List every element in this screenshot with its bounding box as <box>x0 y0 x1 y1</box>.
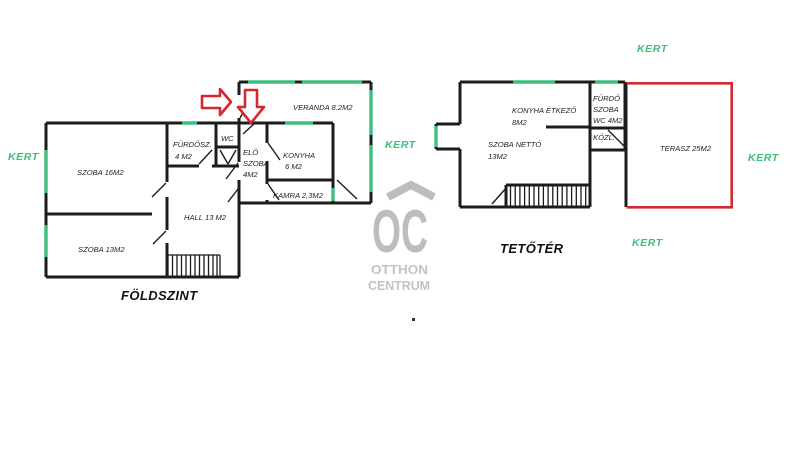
room-label-veranda: VERANDA 8.2M2 <box>293 103 353 112</box>
room-label-terasz: TERASZ 25M2 <box>660 144 712 153</box>
otthon-centrum-watermark: OC OTTHON CENTRUM <box>368 185 434 321</box>
room-label-szoba-16: SZOBA 16M2 <box>77 168 124 177</box>
room-label-konyha-line1: KONYHA <box>283 151 315 160</box>
room-label-furdosz-line2: 4 M2 <box>175 152 193 161</box>
room-label-hall: HALL 13 M2 <box>184 213 227 222</box>
room-label-kamra: KAMRA 2,3M2 <box>273 191 324 200</box>
room-label-konyha-etkezo-line2: 8M2 <box>512 118 528 127</box>
room-label-szoba-netto-line2: 13M2 <box>488 152 508 161</box>
attic-stairs <box>511 186 586 206</box>
logo-text-otthon: OTTHON <box>371 262 428 277</box>
stray-dot <box>412 318 415 321</box>
room-label-eloszoba-line2: SZOBA <box>243 159 269 168</box>
kert-label-attic-top: KERT <box>637 43 669 55</box>
room-label-eloszoba-line1: ELŐ <box>243 148 258 157</box>
kert-label-attic-right: KERT <box>748 152 780 164</box>
kert-label-ground-left: KERT <box>8 151 40 163</box>
kert-label-attic-bottom: KERT <box>632 237 664 249</box>
attic-title: TETŐTÉR <box>500 241 564 256</box>
room-label-konyha-etkezo-line1: KONYHA ÉTKEZŐ <box>512 106 576 115</box>
room-label-konyha-line2: 6 M2 <box>285 162 303 171</box>
room-label-furdosz-line1: FÜRDŐSZ. <box>173 140 212 149</box>
room-label-kozl: KÖZL. <box>593 133 615 142</box>
attic-floor-plan: KONYHA ÉTKEZŐ 8M2 SZOBA NETTÓ 13M2 FÜRDŐ… <box>436 43 780 256</box>
room-label-szoba-13: SZOBA 13M2 <box>78 245 125 254</box>
entrance-arrow-right-icon <box>202 89 231 115</box>
room-label-wc: WC <box>221 134 234 143</box>
floor-plan-page: SZOBA 16M2 SZOBA 13M2 HALL 13 M2 FÜRDŐSZ… <box>0 0 800 476</box>
ground-floor-plan: SZOBA 16M2 SZOBA 13M2 HALL 13 M2 FÜRDŐSZ… <box>8 82 417 303</box>
logo-roof-icon <box>388 185 434 197</box>
ground-stairs <box>168 255 220 276</box>
entrance-arrow-down-icon <box>238 90 264 123</box>
room-label-furdo-line3: WC 4M2 <box>593 116 623 125</box>
ground-floor-title: FÖLDSZINT <box>121 288 198 303</box>
room-label-furdo-line2: SZOBA <box>593 105 619 114</box>
room-label-szoba-netto-line1: SZOBA NETTÓ <box>488 140 541 149</box>
room-label-eloszoba-line3: 4M2 <box>243 170 259 179</box>
logo-initials: OC <box>372 198 428 265</box>
logo-text-centrum: CENTRUM <box>368 278 430 293</box>
kert-label-ground-right: KERT <box>385 139 417 151</box>
floor-plan-drawing: SZOBA 16M2 SZOBA 13M2 HALL 13 M2 FÜRDŐSZ… <box>0 0 800 476</box>
room-label-furdo-line1: FÜRDŐ <box>593 94 620 103</box>
